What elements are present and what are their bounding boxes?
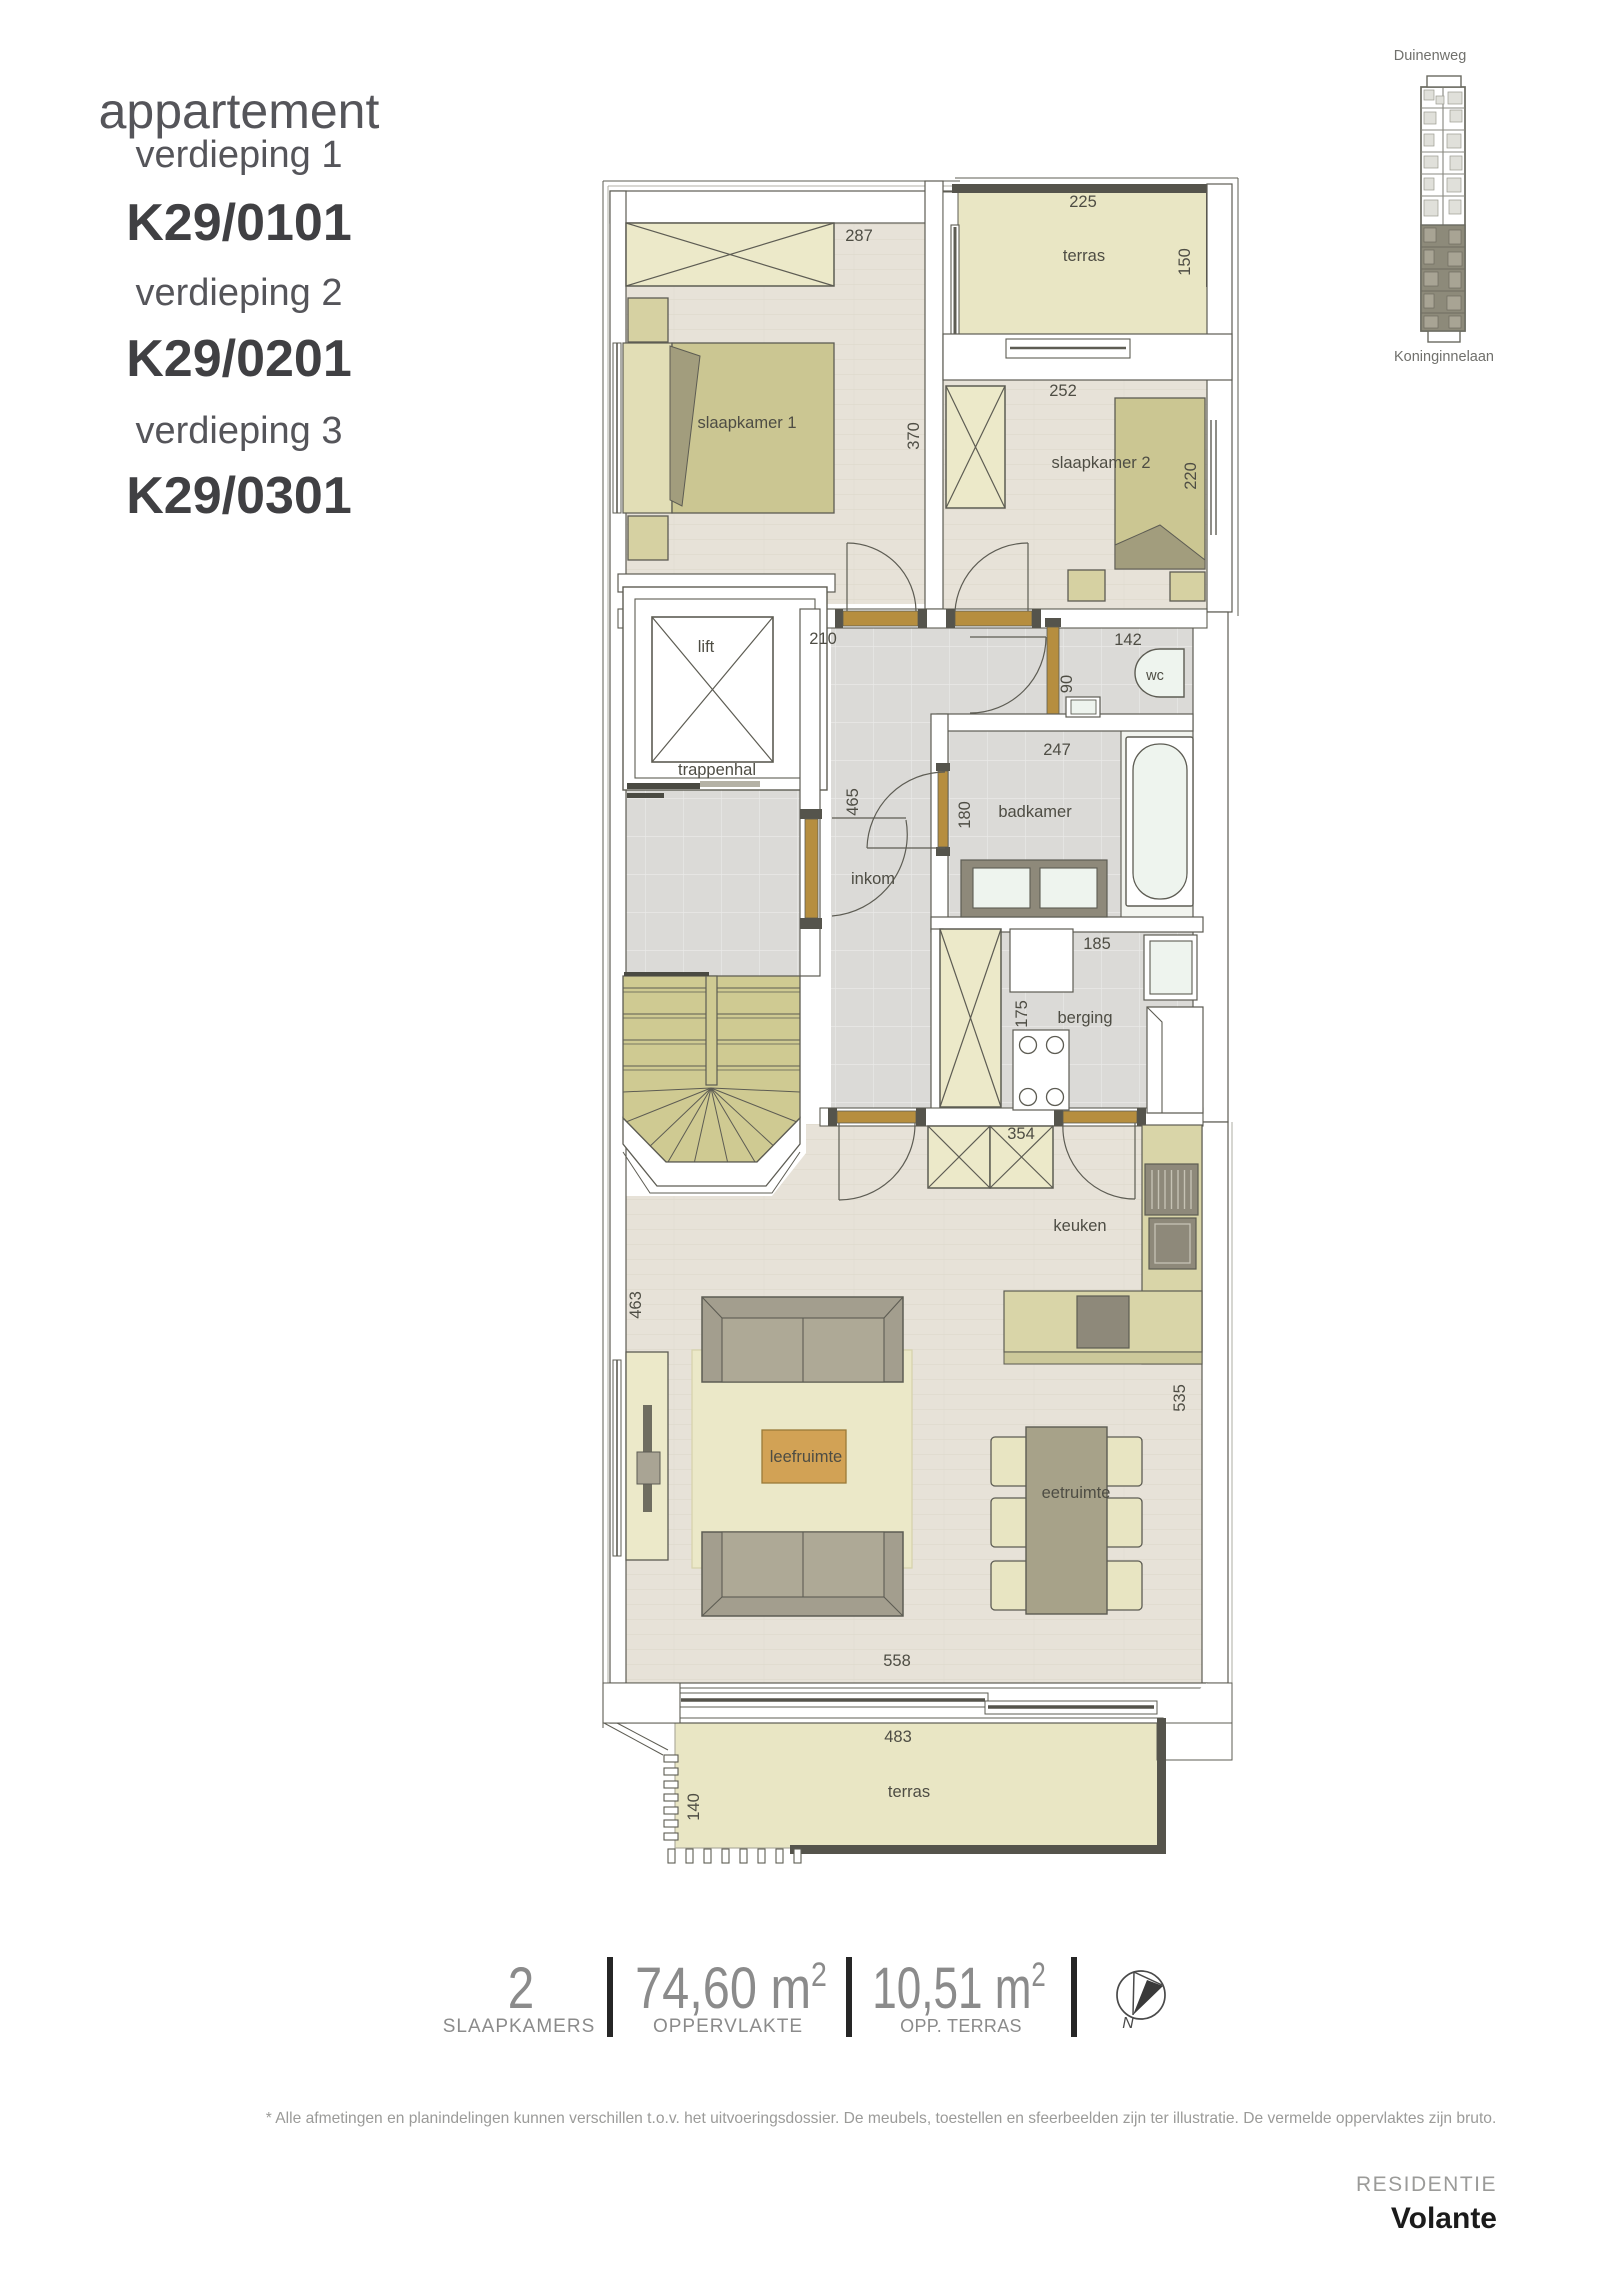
svg-text:483: 483: [884, 1728, 912, 1746]
svg-text:K29/0101: K29/0101: [126, 194, 352, 252]
svg-text:463: 463: [627, 1291, 645, 1319]
svg-text:* Alle afmetingen en planindel: * Alle afmetingen en planindelingen kunn…: [266, 2110, 1497, 2127]
svg-text:247: 247: [1043, 741, 1071, 759]
svg-text:slaapkamer 2: slaapkamer 2: [1051, 454, 1150, 472]
svg-text:287: 287: [845, 227, 873, 245]
svg-text:354: 354: [1007, 1125, 1035, 1143]
svg-text:verdieping 1: verdieping 1: [135, 134, 342, 176]
svg-text:trappenhal: trappenhal: [678, 761, 756, 779]
svg-text:2: 2: [508, 1957, 534, 2022]
svg-text:RESIDENTIE: RESIDENTIE: [1356, 2173, 1497, 2196]
svg-text:slaapkamer 1: slaapkamer 1: [697, 414, 796, 432]
svg-text:keuken: keuken: [1053, 1217, 1106, 1235]
svg-text:180: 180: [956, 801, 974, 829]
svg-text:appartement: appartement: [99, 83, 380, 139]
svg-text:N: N: [1122, 2015, 1134, 2032]
svg-text:eetruimte: eetruimte: [1042, 1484, 1111, 1502]
svg-text:185: 185: [1083, 935, 1111, 953]
svg-text:K29/0201: K29/0201: [126, 330, 352, 388]
svg-text:10,51 m2: 10,51 m2: [872, 1955, 1046, 2020]
svg-text:verdieping 2: verdieping 2: [135, 272, 342, 314]
svg-text:90: 90: [1058, 675, 1076, 693]
svg-text:K29/0301: K29/0301: [126, 467, 352, 525]
svg-text:berging: berging: [1057, 1009, 1112, 1027]
svg-text:535: 535: [1171, 1384, 1189, 1412]
svg-text:225: 225: [1069, 193, 1097, 211]
svg-text:210: 210: [809, 630, 837, 648]
svg-text:terras: terras: [888, 1783, 930, 1801]
svg-text:370: 370: [905, 422, 923, 450]
svg-text:inkom: inkom: [851, 870, 895, 888]
svg-text:175: 175: [1013, 1000, 1031, 1028]
svg-text:terras: terras: [1063, 247, 1105, 265]
svg-text:140: 140: [685, 1793, 703, 1821]
svg-text:142: 142: [1114, 631, 1142, 649]
svg-text:wc: wc: [1145, 668, 1164, 684]
svg-text:74,60 m2: 74,60 m2: [635, 1956, 827, 2021]
svg-text:leefruimte: leefruimte: [770, 1448, 842, 1466]
svg-text:OPP. TERRAS: OPP. TERRAS: [900, 2016, 1022, 2036]
svg-text:558: 558: [883, 1652, 911, 1670]
svg-text:badkamer: badkamer: [998, 803, 1072, 821]
svg-text:SLAAPKAMERS: SLAAPKAMERS: [443, 2016, 596, 2037]
svg-text:OPPERVLAKTE: OPPERVLAKTE: [653, 2016, 803, 2037]
svg-text:220: 220: [1182, 462, 1200, 490]
svg-text:Volante: Volante: [1391, 2202, 1497, 2235]
svg-text:lift: lift: [698, 638, 715, 656]
svg-text:465: 465: [844, 788, 862, 816]
svg-text:verdieping 3: verdieping 3: [135, 410, 342, 452]
svg-text:150: 150: [1176, 248, 1194, 276]
svg-text:Koninginnelaan: Koninginnelaan: [1394, 349, 1494, 365]
svg-text:252: 252: [1049, 382, 1077, 400]
svg-text:Duinenweg: Duinenweg: [1394, 48, 1467, 64]
